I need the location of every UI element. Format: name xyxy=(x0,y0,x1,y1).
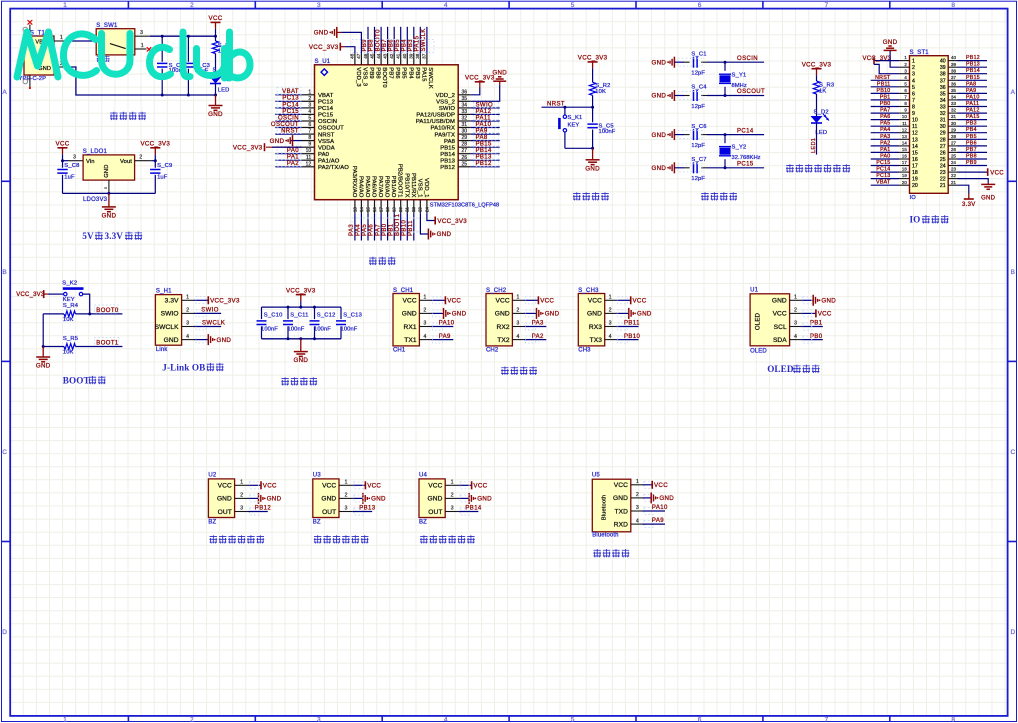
svg-text:OSCIN: OSCIN xyxy=(318,119,337,125)
svg-text:PA8: PA8 xyxy=(444,139,456,145)
svg-text:A: A xyxy=(1011,89,1016,96)
svg-text:BOOT1: BOOT1 xyxy=(395,213,401,236)
svg-text:PB3: PB3 xyxy=(414,67,420,79)
svg-text:PC14: PC14 xyxy=(876,167,890,173)
svg-text:GND: GND xyxy=(652,93,667,100)
svg-text:28: 28 xyxy=(940,137,946,143)
svg-text:46: 46 xyxy=(363,53,368,59)
svg-text:10: 10 xyxy=(902,114,907,119)
svg-text:PB4: PB4 xyxy=(402,39,408,52)
svg-text:40: 40 xyxy=(402,53,407,59)
svg-text:3: 3 xyxy=(240,506,243,512)
svg-text:PA5/AO: PA5/AO xyxy=(364,176,370,198)
svg-text:VCC: VCC xyxy=(773,311,787,318)
svg-text:2: 2 xyxy=(424,308,427,314)
svg-text:VCC: VCC xyxy=(473,483,487,490)
svg-text:12: 12 xyxy=(912,131,918,137)
svg-text:OUT: OUT xyxy=(218,509,232,516)
svg-text:22: 22 xyxy=(951,173,956,178)
svg-text:IO: IO xyxy=(910,195,917,201)
svg-text:U5: U5 xyxy=(592,473,601,479)
svg-text:PB15: PB15 xyxy=(440,145,455,151)
svg-text:PC14: PC14 xyxy=(737,128,754,134)
svg-text:Vout: Vout xyxy=(120,159,132,165)
svg-text:6: 6 xyxy=(308,122,311,128)
svg-text:43: 43 xyxy=(382,53,387,59)
svg-text:PC14: PC14 xyxy=(318,106,334,112)
svg-text:35: 35 xyxy=(951,88,956,93)
svg-text:6: 6 xyxy=(698,2,702,9)
svg-text:OLED: OLED xyxy=(755,312,762,330)
svg-text:8: 8 xyxy=(912,105,915,111)
svg-text:25: 25 xyxy=(462,161,468,167)
svg-text:S_C4: S_C4 xyxy=(691,85,707,91)
svg-text:5: 5 xyxy=(571,717,575,723)
svg-text:VSS_1: VSS_1 xyxy=(416,179,422,198)
svg-text:1: 1 xyxy=(609,295,612,301)
svg-text:PA11: PA11 xyxy=(966,101,979,107)
svg-text:30: 30 xyxy=(951,121,956,126)
svg-text:PB1: PB1 xyxy=(880,94,891,100)
svg-text:38: 38 xyxy=(940,72,946,78)
svg-text:28: 28 xyxy=(951,134,956,139)
svg-text:PB13: PB13 xyxy=(359,506,376,512)
svg-text:21: 21 xyxy=(405,207,410,213)
svg-text:S_C11: S_C11 xyxy=(290,312,308,318)
svg-text:PB14: PB14 xyxy=(966,68,980,74)
svg-text:VCC: VCC xyxy=(263,483,277,490)
svg-text:VCC: VCC xyxy=(588,298,602,305)
svg-text:4: 4 xyxy=(186,334,189,340)
svg-text:3.3V: 3.3V xyxy=(165,298,179,305)
svg-text:S_C10: S_C10 xyxy=(264,312,283,318)
svg-text:3: 3 xyxy=(140,30,143,36)
svg-text:2: 2 xyxy=(451,493,454,499)
svg-text:10K: 10K xyxy=(63,317,74,323)
svg-text:SWIO: SWIO xyxy=(161,311,179,318)
svg-text:PC15: PC15 xyxy=(876,160,890,166)
svg-text:PB12: PB12 xyxy=(255,506,272,512)
svg-text:16: 16 xyxy=(912,157,918,163)
svg-text:2: 2 xyxy=(190,717,194,723)
svg-text:3: 3 xyxy=(317,717,321,723)
svg-text:PA10: PA10 xyxy=(652,505,668,511)
svg-text:31: 31 xyxy=(940,118,946,124)
svg-text:PA9: PA9 xyxy=(966,88,976,94)
svg-text:37: 37 xyxy=(940,78,946,84)
svg-text:10: 10 xyxy=(306,148,312,154)
svg-text:VCC: VCC xyxy=(990,170,1004,176)
svg-text:1: 1 xyxy=(794,295,797,301)
svg-text:3: 3 xyxy=(424,321,427,327)
svg-text:48: 48 xyxy=(350,53,355,59)
svg-text:S_C7: S_C7 xyxy=(691,157,706,163)
svg-text:OSCIN: OSCIN xyxy=(737,56,758,62)
svg-text:3: 3 xyxy=(609,321,612,327)
svg-text:3: 3 xyxy=(345,506,348,512)
svg-text:33: 33 xyxy=(951,101,956,106)
svg-text:33: 33 xyxy=(940,105,946,111)
svg-text:12pF: 12pF xyxy=(691,143,705,149)
svg-text:TX1: TX1 xyxy=(404,337,417,344)
svg-text:LED: LED xyxy=(815,130,827,136)
svg-text:29: 29 xyxy=(951,127,956,132)
svg-text:18: 18 xyxy=(912,170,918,176)
svg-text:2: 2 xyxy=(794,308,797,314)
svg-text:20: 20 xyxy=(912,183,918,189)
svg-text:SDA: SDA xyxy=(773,337,787,344)
svg-text:PB9: PB9 xyxy=(368,67,374,78)
svg-text:VCC_3V3: VCC_3V3 xyxy=(16,292,45,298)
svg-text:PA3/RX/AO: PA3/RX/AO xyxy=(351,166,357,198)
svg-text:PA1/AO: PA1/AO xyxy=(318,158,340,164)
svg-text:VCC: VCC xyxy=(614,482,628,489)
svg-text:38: 38 xyxy=(951,68,956,73)
svg-text:20: 20 xyxy=(398,207,403,213)
svg-text:1K: 1K xyxy=(819,89,826,95)
svg-text:OLED: OLED xyxy=(750,348,767,354)
svg-text:PA9/TX: PA9/TX xyxy=(435,132,455,138)
svg-text:RX3: RX3 xyxy=(589,324,602,331)
svg-text:1uF: 1uF xyxy=(157,175,168,181)
svg-text:PB11: PB11 xyxy=(408,220,414,236)
svg-text:VCC_3V3: VCC_3V3 xyxy=(286,287,316,294)
svg-text:GND: GND xyxy=(659,495,674,502)
svg-text:10K: 10K xyxy=(595,89,606,95)
svg-text:34: 34 xyxy=(940,98,946,104)
svg-text:PA7/AO: PA7/AO xyxy=(377,176,383,198)
svg-text:PA0: PA0 xyxy=(318,152,330,158)
svg-text:S_Y1: S_Y1 xyxy=(732,72,747,78)
svg-text:3: 3 xyxy=(308,102,311,108)
svg-text:PA2: PA2 xyxy=(880,140,890,146)
svg-text:STM32F103C8T6_LQFP48: STM32F103C8T6_LQFP48 xyxy=(430,202,499,208)
svg-text:PB9: PB9 xyxy=(362,39,368,52)
svg-text:VCC: VCC xyxy=(428,483,442,490)
svg-text:22: 22 xyxy=(940,177,946,183)
svg-text:2: 2 xyxy=(139,155,142,161)
svg-text:GND: GND xyxy=(402,311,417,318)
svg-text:Link: Link xyxy=(156,347,168,353)
svg-text:PC13: PC13 xyxy=(876,173,890,179)
svg-text:VCC: VCC xyxy=(322,483,336,490)
svg-text:1: 1 xyxy=(63,2,67,9)
svg-text:PA7: PA7 xyxy=(880,108,890,114)
svg-text:2: 2 xyxy=(240,493,243,499)
svg-text:19: 19 xyxy=(392,207,397,213)
svg-text:8MHz: 8MHz xyxy=(732,83,747,89)
svg-text:1: 1 xyxy=(186,295,189,301)
svg-text:VCC: VCC xyxy=(402,298,416,305)
svg-text:27: 27 xyxy=(940,144,946,150)
svg-text:37: 37 xyxy=(422,53,427,59)
svg-text:PC13: PC13 xyxy=(318,100,334,106)
svg-text:D: D xyxy=(2,629,7,636)
svg-text:13: 13 xyxy=(902,134,907,139)
svg-text:S_SW1: S_SW1 xyxy=(96,23,118,29)
svg-text:41: 41 xyxy=(396,53,401,59)
svg-text:14: 14 xyxy=(912,144,918,150)
svg-text:VCC_3V3: VCC_3V3 xyxy=(309,44,339,51)
svg-text:IO: IO xyxy=(910,215,921,225)
svg-text:3: 3 xyxy=(451,506,454,512)
svg-text:PA4/AO: PA4/AO xyxy=(357,176,363,198)
svg-text:4: 4 xyxy=(517,334,520,340)
svg-text:1: 1 xyxy=(912,59,915,65)
svg-text:CH3: CH3 xyxy=(578,348,591,354)
svg-text:PA4: PA4 xyxy=(880,127,890,133)
svg-text:23: 23 xyxy=(940,170,946,176)
svg-text:3: 3 xyxy=(517,321,520,327)
svg-text:PB4: PB4 xyxy=(407,67,413,79)
svg-text:2: 2 xyxy=(345,493,348,499)
svg-text:GND: GND xyxy=(267,496,282,503)
svg-text:NRST: NRST xyxy=(547,101,565,107)
svg-text:S_CH2: S_CH2 xyxy=(486,288,507,294)
svg-text:100nF: 100nF xyxy=(599,129,616,135)
svg-text:20: 20 xyxy=(902,180,907,185)
svg-text:PB11/RX: PB11/RX xyxy=(410,173,416,198)
svg-text:SWIO: SWIO xyxy=(439,106,455,112)
svg-text:S_U1: S_U1 xyxy=(315,59,331,65)
svg-text:1: 1 xyxy=(636,479,639,485)
svg-text:5V: 5V xyxy=(82,231,94,241)
svg-text:PC15: PC15 xyxy=(318,113,334,119)
svg-text:PB13: PB13 xyxy=(440,158,455,164)
svg-text:6: 6 xyxy=(912,91,915,97)
svg-text:PB1/AO: PB1/AO xyxy=(390,176,396,198)
svg-text:PA2: PA2 xyxy=(532,334,544,340)
svg-text:U2: U2 xyxy=(208,472,217,478)
svg-text:LED1: LED1 xyxy=(811,138,817,153)
svg-text:32: 32 xyxy=(940,111,946,117)
svg-text:VDD_1: VDD_1 xyxy=(423,178,429,198)
svg-text:PA5: PA5 xyxy=(362,224,368,236)
svg-text:S_C6: S_C6 xyxy=(691,124,706,130)
svg-text:21: 21 xyxy=(940,183,946,189)
svg-text:PB5: PB5 xyxy=(401,67,407,79)
svg-text:23: 23 xyxy=(951,167,956,172)
svg-text:BZ: BZ xyxy=(208,520,216,526)
svg-text:3.3V: 3.3V xyxy=(105,231,124,241)
svg-text:BOOT0: BOOT0 xyxy=(381,67,387,88)
svg-text:VCC: VCC xyxy=(495,298,509,305)
svg-text:3: 3 xyxy=(73,155,76,161)
svg-text:SWCLK: SWCLK xyxy=(427,67,433,88)
svg-text:VDDA: VDDA xyxy=(318,145,335,151)
svg-text:PB7: PB7 xyxy=(966,147,977,153)
svg-text:U1: U1 xyxy=(750,287,759,293)
svg-text:S_C9: S_C9 xyxy=(157,163,172,169)
svg-text:23: 23 xyxy=(418,207,423,213)
svg-text:OUT: OUT xyxy=(428,509,442,516)
svg-text:PA10: PA10 xyxy=(966,94,980,100)
svg-text:PB4: PB4 xyxy=(966,127,977,133)
svg-text:S_C12: S_C12 xyxy=(317,312,336,318)
svg-text:S_Y2: S_Y2 xyxy=(732,145,747,151)
svg-text:PB5: PB5 xyxy=(395,39,401,52)
svg-text:2: 2 xyxy=(912,65,915,71)
svg-text:1: 1 xyxy=(63,717,67,723)
svg-text:S_LDO1: S_LDO1 xyxy=(83,149,108,155)
svg-text:PA15: PA15 xyxy=(415,35,421,51)
svg-text:GND: GND xyxy=(371,496,386,503)
svg-text:2: 2 xyxy=(308,96,311,102)
svg-text:GND: GND xyxy=(164,337,179,344)
svg-text:16: 16 xyxy=(902,154,907,159)
svg-text:39: 39 xyxy=(940,65,946,71)
svg-text:11: 11 xyxy=(306,155,311,161)
svg-text:35: 35 xyxy=(462,96,468,102)
svg-text:PA12/USB/DP: PA12/USB/DP xyxy=(416,113,455,119)
svg-text:S_ST1: S_ST1 xyxy=(910,50,930,56)
svg-text:VCC_3V3: VCC_3V3 xyxy=(578,55,608,62)
svg-text:PB5: PB5 xyxy=(966,134,977,140)
svg-text:GND: GND xyxy=(652,132,667,139)
svg-text:26: 26 xyxy=(951,147,956,152)
svg-text:39: 39 xyxy=(409,53,414,59)
svg-text:PB6: PB6 xyxy=(388,39,394,52)
svg-text:PA10: PA10 xyxy=(439,321,455,327)
svg-text:100nF: 100nF xyxy=(288,327,305,333)
svg-text:S_CH3: S_CH3 xyxy=(578,288,599,294)
svg-text:2: 2 xyxy=(517,308,520,314)
svg-text:LED: LED xyxy=(218,87,230,93)
svg-text:PB10/TX: PB10/TX xyxy=(403,173,409,197)
svg-text:PA6: PA6 xyxy=(369,224,375,236)
svg-text:2: 2 xyxy=(190,2,194,9)
svg-text:SCL: SCL xyxy=(774,324,787,331)
svg-text:2: 2 xyxy=(636,492,639,498)
svg-text:U3: U3 xyxy=(313,472,322,478)
svg-text:GND: GND xyxy=(217,337,232,344)
svg-text:PA1: PA1 xyxy=(880,147,890,153)
svg-text:GND: GND xyxy=(104,165,110,178)
svg-text:PB8: PB8 xyxy=(966,154,977,160)
svg-text:PB0: PB0 xyxy=(382,223,388,236)
svg-text:12pF: 12pF xyxy=(691,176,705,182)
svg-text:NRST: NRST xyxy=(875,75,891,81)
svg-text:BZ: BZ xyxy=(419,520,427,526)
svg-text:S_R4: S_R4 xyxy=(63,303,79,309)
svg-text:B: B xyxy=(1011,269,1015,276)
svg-text:12pF: 12pF xyxy=(691,71,705,77)
svg-text:VSS_2: VSS_2 xyxy=(436,100,455,106)
svg-text:PA8: PA8 xyxy=(966,81,976,87)
svg-text:40: 40 xyxy=(951,55,956,60)
svg-text:VCC: VCC xyxy=(447,298,461,305)
svg-text:PA12: PA12 xyxy=(966,108,980,114)
svg-text:10K: 10K xyxy=(63,350,74,356)
svg-text:VBAT: VBAT xyxy=(876,180,891,186)
svg-text:26: 26 xyxy=(462,155,468,161)
svg-text:VCC_3V3: VCC_3V3 xyxy=(802,62,832,69)
svg-text:RX1: RX1 xyxy=(404,324,417,331)
svg-text:BOOT: BOOT xyxy=(63,375,90,385)
svg-text:34: 34 xyxy=(951,95,956,100)
svg-text:10: 10 xyxy=(912,118,918,124)
svg-text:19: 19 xyxy=(912,177,918,183)
svg-text:C: C xyxy=(2,449,7,456)
svg-text:29: 29 xyxy=(462,135,468,141)
svg-text:18: 18 xyxy=(385,207,390,213)
svg-text:KEY: KEY xyxy=(568,123,580,129)
svg-text:S_H1: S_H1 xyxy=(156,288,172,294)
svg-text:VCC: VCC xyxy=(540,298,554,305)
svg-text:VDD_3: VDD_3 xyxy=(355,67,361,87)
svg-text:GND: GND xyxy=(270,138,285,145)
svg-text:PB3: PB3 xyxy=(408,39,414,52)
svg-text:28: 28 xyxy=(462,142,468,148)
svg-text:1: 1 xyxy=(345,480,348,486)
svg-text:4: 4 xyxy=(444,2,448,9)
svg-text:PB11: PB11 xyxy=(877,81,891,87)
svg-text:3: 3 xyxy=(186,321,189,327)
svg-text:5: 5 xyxy=(308,116,311,122)
svg-text:VCC: VCC xyxy=(633,298,647,305)
svg-text:GND: GND xyxy=(883,39,898,46)
svg-text:OUT: OUT xyxy=(322,509,336,516)
svg-text:GND: GND xyxy=(293,357,308,364)
svg-text:S_C8: S_C8 xyxy=(64,163,79,169)
svg-text:PB12: PB12 xyxy=(440,165,455,171)
svg-text:4: 4 xyxy=(308,109,311,115)
svg-text:GND: GND xyxy=(585,165,600,172)
svg-text:40: 40 xyxy=(940,59,946,65)
svg-text:VBAT: VBAT xyxy=(318,93,334,99)
svg-text:7: 7 xyxy=(825,2,829,9)
svg-text:Vin: Vin xyxy=(86,159,95,165)
svg-text:29: 29 xyxy=(940,131,946,137)
svg-text:U4: U4 xyxy=(419,472,428,478)
svg-text:7: 7 xyxy=(308,129,311,135)
svg-text:3: 3 xyxy=(317,2,321,9)
svg-text:24: 24 xyxy=(424,207,429,213)
svg-text:PB8: PB8 xyxy=(369,39,375,52)
svg-text:Bluetooth: Bluetooth xyxy=(592,533,618,539)
svg-text:GND: GND xyxy=(495,311,510,318)
svg-text:VDD_2: VDD_2 xyxy=(436,93,456,99)
svg-text:PB8: PB8 xyxy=(375,67,381,79)
svg-text:42: 42 xyxy=(389,53,394,59)
svg-text:32: 32 xyxy=(951,108,956,113)
svg-text:3: 3 xyxy=(794,321,797,327)
svg-text:1: 1 xyxy=(141,43,144,49)
svg-text:31: 31 xyxy=(951,114,956,119)
svg-text:22: 22 xyxy=(411,207,416,213)
svg-text:B: B xyxy=(2,269,6,276)
svg-text:S_C1: S_C1 xyxy=(691,51,706,57)
svg-text:7: 7 xyxy=(825,717,829,723)
svg-text:OLED: OLED xyxy=(767,364,794,374)
svg-text:11: 11 xyxy=(902,121,907,126)
svg-text:45: 45 xyxy=(369,53,374,59)
svg-text:14: 14 xyxy=(359,207,364,213)
svg-text:PA2/TX/AO: PA2/TX/AO xyxy=(318,165,349,171)
svg-text:5: 5 xyxy=(912,85,915,91)
svg-text:PB14: PB14 xyxy=(465,506,482,512)
svg-text:VSS_3: VSS_3 xyxy=(361,67,367,86)
svg-text:VCC: VCC xyxy=(218,483,232,490)
svg-text:GND: GND xyxy=(477,496,492,503)
svg-text:9: 9 xyxy=(308,142,311,148)
svg-text:PA4: PA4 xyxy=(356,224,362,236)
svg-text:PA3: PA3 xyxy=(532,321,544,327)
svg-text:TX3: TX3 xyxy=(590,337,603,344)
svg-text:2: 2 xyxy=(609,308,612,314)
svg-text:RXD: RXD xyxy=(614,521,628,528)
svg-text:4: 4 xyxy=(444,717,448,723)
